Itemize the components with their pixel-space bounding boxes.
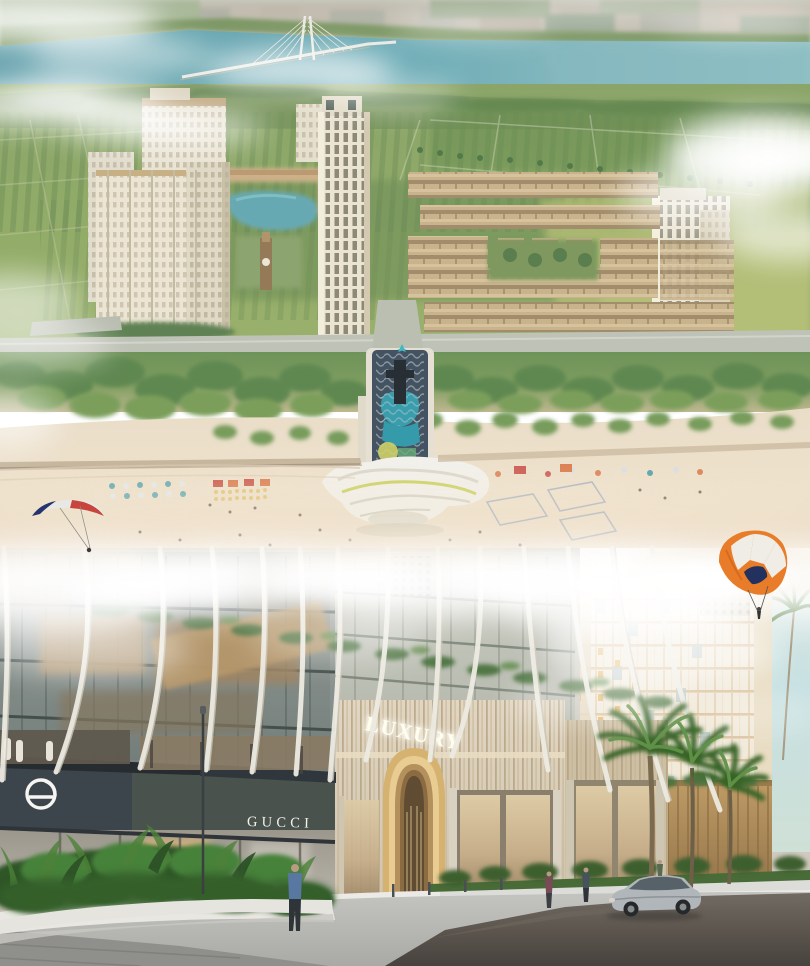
svg-text:GUCCI: GUCCI (247, 814, 314, 832)
